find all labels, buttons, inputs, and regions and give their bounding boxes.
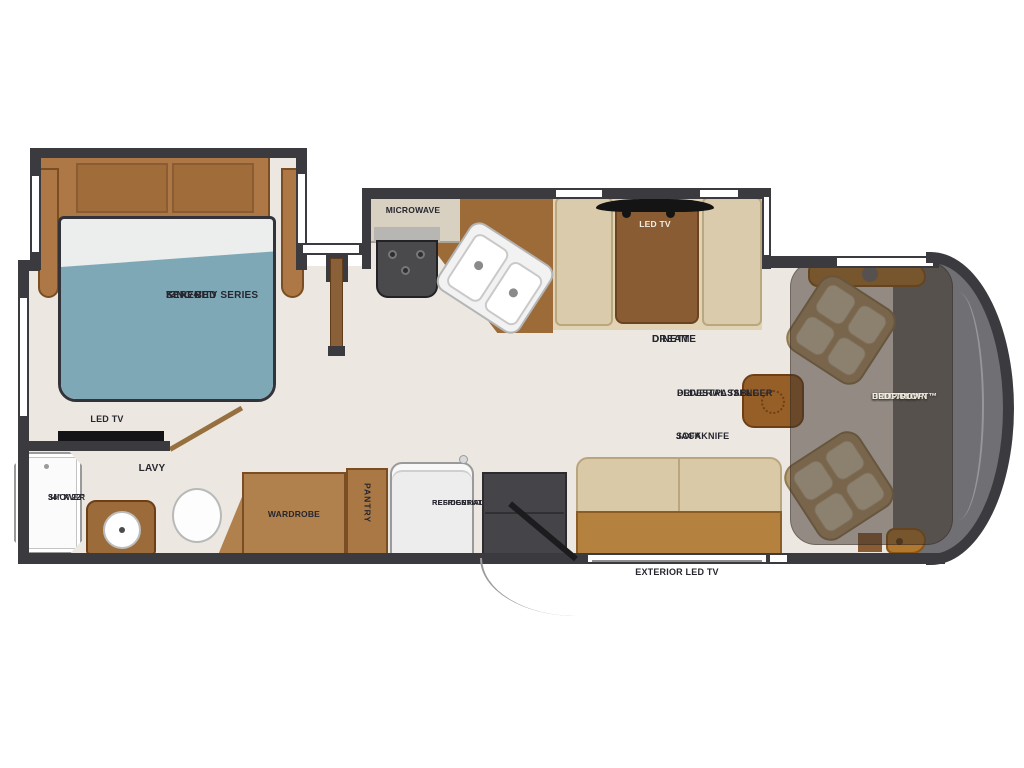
king-bed [58,216,276,402]
exterior-tv-label: EXTERIOR LED TV [635,567,719,578]
windshield-top-window [837,258,933,266]
bed-slide-right-window [298,174,305,252]
exterior-tv-bar [592,560,762,562]
sofa-back-divider [678,459,680,511]
dinette-bench-left [555,197,613,326]
pocket-door-stop [328,346,345,356]
nose-outline [926,252,1014,565]
dinette-tv-knob [622,209,631,218]
sofa-seat [576,511,782,555]
sink-drain [119,527,125,533]
kitchen-slide-window [700,190,738,197]
stove-burner [401,266,410,275]
bed-slide-left-window [32,176,39,252]
dinette-bench-right [702,197,762,326]
toilet [172,488,222,543]
stove-burner [388,250,397,259]
wardrobe-label: WARDROBE [268,509,320,520]
pantry-label: PANTRY [362,483,373,523]
bed-side-cabinet-left [38,168,59,298]
headboard-panel [172,163,254,213]
kitchen-slide-right-window [764,197,769,255]
dinette-tv-label: LED TV [639,219,670,230]
bathroom-wall [18,441,170,451]
rear-window [20,298,27,416]
kitchen-slide-left-wall [362,188,371,269]
shower-drain [44,464,49,469]
microwave-label: MICROWAVE [386,205,441,216]
refrigerator-hinge [459,455,468,464]
entry-door-arc [480,558,576,616]
vanity-sink [86,500,156,555]
bedroom-tv-label: LED TV [90,414,123,425]
rv-floorplan-diagram: SERENITY SERIES KING BED 72" x 74" LED T… [0,0,1024,768]
refrigerator [390,462,474,555]
bed-blanket [61,251,276,402]
stove-burner [416,250,425,259]
headboard-panel [76,163,168,213]
lavy-label: LAVY [139,463,166,476]
dinette-tv [596,199,714,212]
bottom-window [770,555,787,562]
bedroom-tv [58,431,164,441]
top-wall-a-window [303,245,359,253]
bed-slide-top-wall [30,148,307,158]
dinette-tv-knob [666,209,675,218]
kitchen-slide-window [556,190,602,197]
pocket-door [330,258,343,351]
